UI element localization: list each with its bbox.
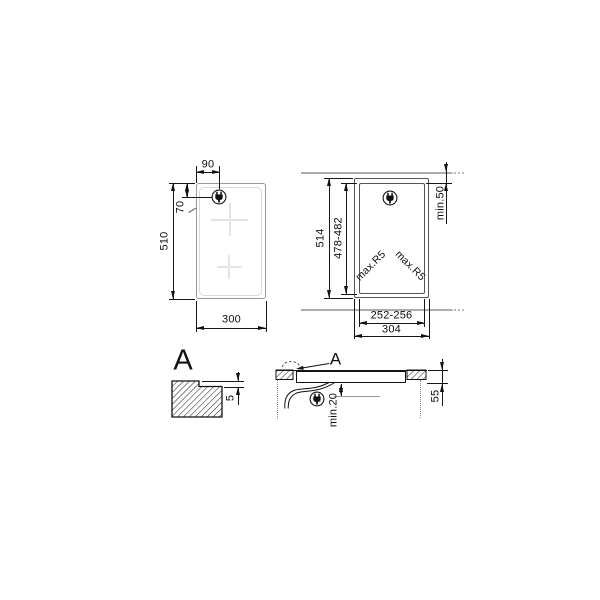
arrowhead xyxy=(339,388,343,396)
arrowhead xyxy=(440,362,444,370)
section-view-figure: A min.20 55 xyxy=(0,0,600,600)
installation-diagram: 90 70 510 300 xyxy=(0,0,600,600)
power-plug-icon xyxy=(309,391,325,407)
section-a-label: A xyxy=(330,350,341,367)
clearance-plane-line xyxy=(334,396,380,397)
hob-body-section xyxy=(296,371,406,383)
min-clearance-below-dim: min.20 xyxy=(329,393,340,427)
cabinet-wall-left xyxy=(277,380,278,419)
extension-line xyxy=(428,370,448,371)
extension-line xyxy=(427,383,448,384)
cabinet-wall-right xyxy=(420,380,421,418)
built-in-height-dim: 55 xyxy=(431,390,442,403)
